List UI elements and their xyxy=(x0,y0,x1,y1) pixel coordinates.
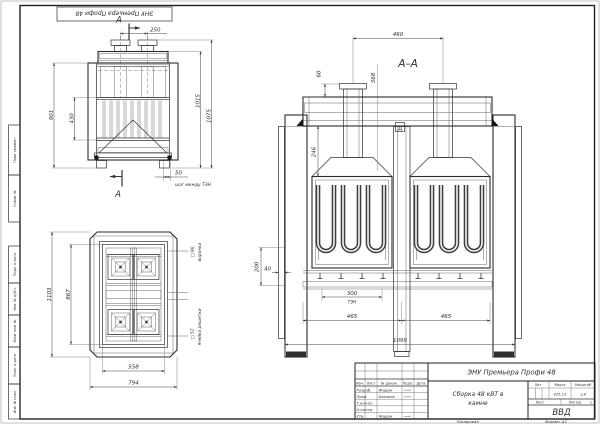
footer-format-label: Формат А2 xyxy=(545,419,567,424)
margin-label-podp-data-2: Подп. и дата xyxy=(13,354,17,377)
title-block-sheet-label: Лист xyxy=(536,401,545,405)
section-marker-bottom: А xyxy=(114,190,121,200)
sign-name-razrab: Жадан xyxy=(378,387,393,392)
sign-row-razrab: Разраб. xyxy=(357,387,372,392)
stamp-text: ЭНУ Премьера Профи 48 xyxy=(75,10,154,17)
sign-col-izm: Изм. xyxy=(356,381,364,385)
sign-col-podp: Подп. xyxy=(403,381,413,385)
title-block-title: ЭНУ Премьера Профи 48 xyxy=(466,369,556,377)
dim-sec-1099: 1099 xyxy=(393,338,407,344)
title-block-scale-header: Масштаб xyxy=(575,383,591,387)
margin-label-sprav-no: Справ. № xyxy=(13,190,17,207)
dim-sec-465-right: 465 xyxy=(441,314,452,320)
margin-label-podp-data-1: Подп. и дата xyxy=(13,253,17,276)
sign-col-data: Дата xyxy=(417,381,426,385)
datum-mark: Д xyxy=(398,126,403,132)
section-label: А–А xyxy=(397,58,418,70)
dim-sec-460: 460 xyxy=(393,32,404,38)
footer-copied-label: Копировал xyxy=(457,419,479,424)
dim-sec-246: 246 xyxy=(312,146,318,157)
dim-sec-40: 40 xyxy=(264,267,271,273)
sign-col-list: Лист xyxy=(367,381,376,385)
margin-label-vzam-inv: Взам. инв. № xyxy=(13,319,17,342)
dim-front-step-note: шаг между ТЭН xyxy=(175,182,211,188)
dim-sec-368: 368 xyxy=(371,72,377,83)
title-block-mass-value: 425,11 xyxy=(553,392,566,397)
dim-sec-300: 300 xyxy=(347,291,358,297)
dim-sec-465-left: 465 xyxy=(347,314,358,320)
title-block-mass-header: Масса xyxy=(555,383,566,387)
title-block-org: ВВД xyxy=(552,408,571,418)
dim-front-250: 250 xyxy=(150,28,161,34)
dim-front-1075: 1075 xyxy=(207,109,213,123)
sign-row-prov: Пров. xyxy=(357,394,368,399)
dim-plan-558: 558 xyxy=(128,365,139,371)
title-block-doc-line2: камне xyxy=(468,400,488,407)
sign-row-nkontr: Н.контр. xyxy=(357,407,374,412)
callout-opening-size: □ 90 xyxy=(190,246,196,257)
sign-row-tkontr: Т.контр. xyxy=(357,401,373,406)
margin-label-inv-podl: Инв. № подл. xyxy=(13,390,17,413)
sign-col-doc: № докум. xyxy=(381,381,398,385)
section-marker-top: А xyxy=(115,16,122,26)
sign-name-utv: Жадан xyxy=(378,414,393,419)
callout-cell-size: □ 57 xyxy=(190,328,196,339)
title-block-lit-header: Лит. xyxy=(535,383,543,387)
title-block-sheets-value: 1 xyxy=(590,401,592,405)
sheet-frame xyxy=(1,1,599,423)
dim-front-901: 901 xyxy=(49,110,55,121)
sign-name-prov: Казаков xyxy=(379,394,396,399)
dim-plan-794: 794 xyxy=(128,381,139,387)
callout-cell-label: ячейка решетки xyxy=(197,308,203,345)
title-block-sheets-label: Листов xyxy=(569,401,582,405)
sign-row-utv: Утв. xyxy=(357,414,365,419)
dim-front-1015: 1015 xyxy=(196,94,202,108)
margin-label-perv-primen: Перв. примен. xyxy=(13,137,17,162)
dim-front-430: 430 xyxy=(70,113,76,124)
margin-label-inv-dubl: Инв. № дубл. xyxy=(13,287,17,310)
drawing-sheet: Перв. примен. Справ. № Подп. и дата Инв.… xyxy=(0,0,600,424)
drawing-canvas: Перв. примен. Справ. № Подп. и дата Инв.… xyxy=(0,0,600,424)
title-block-doc-line1: Сборка 48 кВТ в xyxy=(453,391,504,398)
dim-plan-867: 867 xyxy=(66,289,72,300)
callout-opening-label: воронка xyxy=(198,242,203,261)
title-block-scale-value: 1:9 xyxy=(580,392,587,397)
dim-plan-1103: 1103 xyxy=(47,287,53,301)
dim-sec-ten-label: ТЭН xyxy=(348,300,358,306)
dim-sec-60: 60 xyxy=(317,70,323,77)
dim-front-50: 50 xyxy=(175,171,182,177)
dim-sec-200: 200 xyxy=(255,261,261,272)
